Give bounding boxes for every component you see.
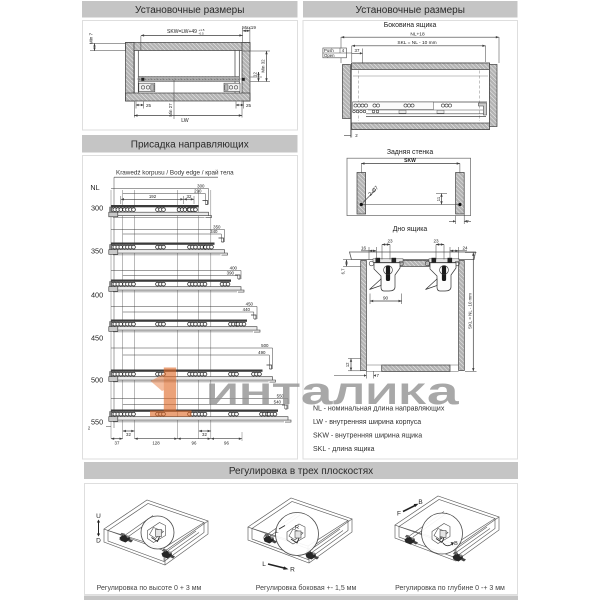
svg-text:B: B <box>418 499 422 506</box>
svg-text:11: 11 <box>436 196 441 201</box>
svg-text:Установочные размеры: Установочные размеры <box>135 5 244 16</box>
svg-text:37: 37 <box>115 440 120 445</box>
svg-text:NL: NL <box>90 183 99 192</box>
svg-text:192: 192 <box>149 194 157 199</box>
svg-text:Регулировка в трех плоскостях: Регулировка в трех плоскостях <box>229 466 373 477</box>
svg-text:32: 32 <box>126 432 131 437</box>
svg-text:SKL = NL - 10 mm: SKL = NL - 10 mm <box>397 40 436 46</box>
svg-text:Min 27: Min 27 <box>168 103 173 117</box>
svg-text:290: 290 <box>194 188 202 193</box>
svg-text:12: 12 <box>253 72 258 77</box>
svg-text:450: 450 <box>246 301 254 306</box>
svg-text:Регулировка по глубине 0 -+ 3: Регулировка по глубине 0 -+ 3 мм <box>395 584 505 592</box>
svg-text:Задняя стенка: Задняя стенка <box>387 149 434 156</box>
svg-text:SKW: SKW <box>404 158 416 164</box>
svg-text:24: 24 <box>462 246 468 251</box>
svg-text:F: F <box>397 511 401 518</box>
svg-text:96: 96 <box>224 440 229 445</box>
svg-text:Min 32: Min 32 <box>261 59 266 73</box>
svg-text:25: 25 <box>246 103 252 108</box>
svg-text:12: 12 <box>345 362 350 367</box>
svg-text:128: 128 <box>152 440 160 445</box>
svg-text:300: 300 <box>91 203 103 212</box>
svg-text:Max19: Max19 <box>242 25 256 30</box>
svg-text:90: 90 <box>383 295 389 300</box>
svg-text:ИНТаЛИКа: ИНТаЛИКа <box>206 370 460 412</box>
svg-text:-0.5: -0.5 <box>199 32 205 36</box>
svg-text:96: 96 <box>192 440 197 445</box>
svg-text:Open: Open <box>324 53 335 58</box>
svg-text:SKW=LW+49: SKW=LW+49 <box>167 29 197 35</box>
svg-text:Min 7: Min 7 <box>89 32 94 44</box>
svg-text:Боковина ящика: Боковина ящика <box>384 22 437 29</box>
svg-text:Регулировка боковая +- 1,5 мм: Регулировка боковая +- 1,5 мм <box>256 584 357 592</box>
svg-text:Регулировка по высоте 0 + 3 мм: Регулировка по высоте 0 + 3 мм <box>97 585 202 592</box>
svg-text:16: 16 <box>361 246 367 251</box>
svg-text:NL+18: NL+18 <box>410 31 425 37</box>
svg-text:U: U <box>96 513 101 520</box>
svg-text:R: R <box>290 567 295 574</box>
svg-text:L: L <box>275 529 278 535</box>
svg-text:440: 440 <box>243 307 251 312</box>
svg-text:400: 400 <box>91 290 103 299</box>
svg-text:Установочные размеры: Установочные размеры <box>356 5 465 16</box>
svg-text:SKL = NL - 10 mm: SKL = NL - 10 mm <box>467 293 472 329</box>
svg-text:23: 23 <box>387 239 393 244</box>
svg-text:Krawedź korpusu / Body edge /: Krawedź korpusu / Body edge / край тела <box>116 169 234 177</box>
svg-text:450: 450 <box>91 333 103 342</box>
svg-text:490: 490 <box>258 350 266 355</box>
svg-text:L: L <box>262 561 266 568</box>
svg-text:32: 32 <box>187 194 192 199</box>
svg-text:23: 23 <box>433 239 439 244</box>
svg-text:LW - внутренняя ширина корпуса: LW - внутренняя ширина корпуса <box>313 419 421 426</box>
svg-text:350: 350 <box>91 247 103 256</box>
svg-text:SKL - длина ящика: SKL - длина ящика <box>313 446 375 453</box>
svg-text:25: 25 <box>146 103 152 108</box>
svg-text:Дно ящика: Дно ящика <box>393 226 428 233</box>
svg-text:32: 32 <box>202 432 207 437</box>
svg-text:37: 37 <box>355 48 360 53</box>
svg-text:500: 500 <box>261 343 269 348</box>
svg-text:LW: LW <box>181 118 188 124</box>
svg-text:550: 550 <box>91 418 103 427</box>
svg-text:Присадка направляющих: Присадка направляющих <box>131 139 249 150</box>
svg-text:390: 390 <box>227 270 235 275</box>
svg-text:500: 500 <box>91 375 103 384</box>
svg-text:R: R <box>295 525 299 531</box>
svg-text:D: D <box>96 538 101 545</box>
svg-text:B: B <box>454 541 458 547</box>
svg-text:6,7: 6,7 <box>341 268 346 274</box>
svg-text:SKW - внутренняя ширина ящика: SKW - внутренняя ширина ящика <box>313 433 422 440</box>
svg-text:340: 340 <box>210 229 218 234</box>
